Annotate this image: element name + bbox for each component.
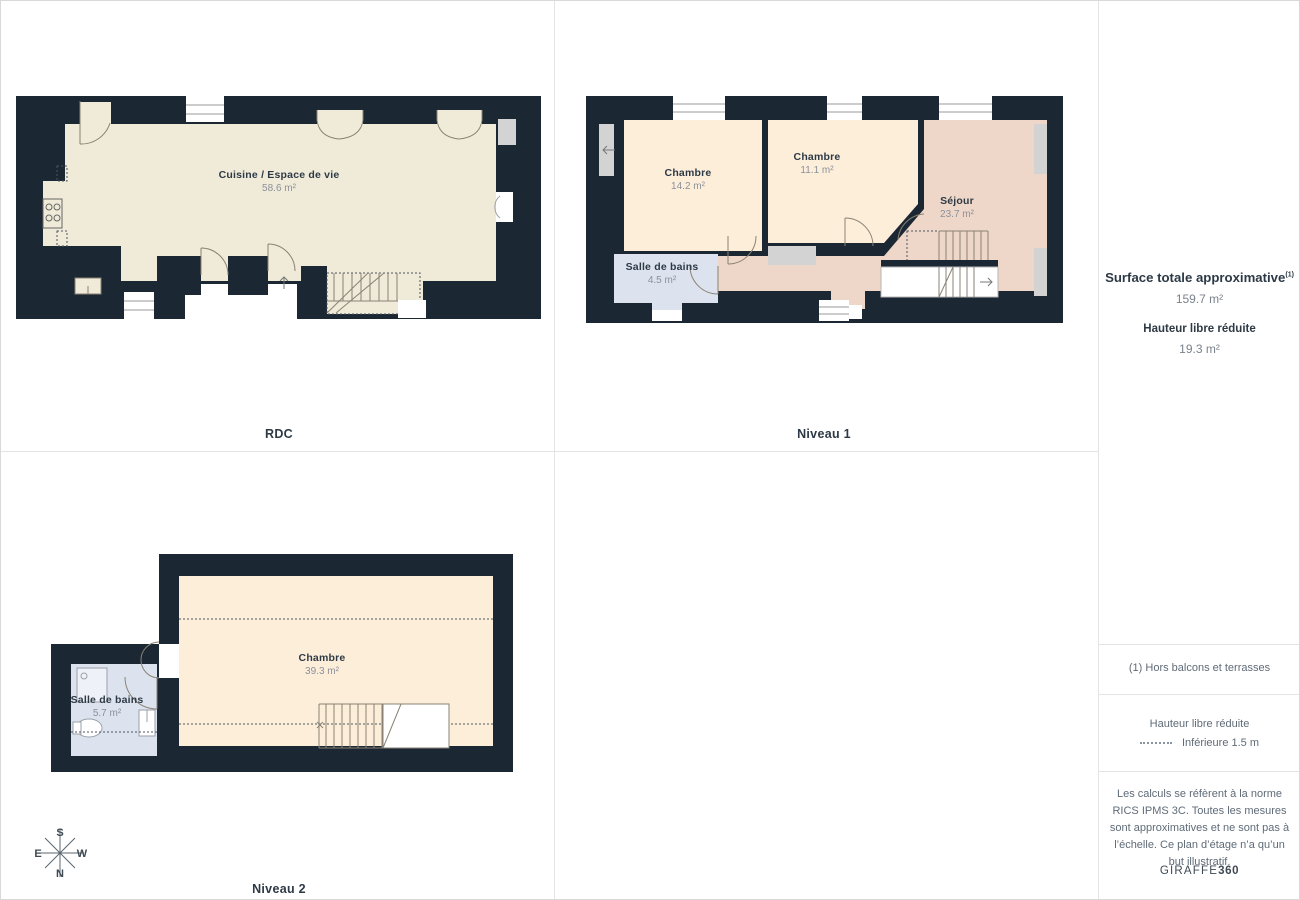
room-area: 4.5 m² (626, 275, 699, 286)
grid-divider-horizontal (1, 451, 1098, 452)
dotted-line-icon (1140, 742, 1172, 744)
room-label-salle-de-bains-n2: Salle de bains 5.7 m² (71, 694, 144, 719)
room-label-chambre-2: Chambre 11.1 m² (794, 151, 841, 176)
brand-suffix: 360 (1218, 865, 1239, 877)
footnote-text: (1) Hors balcons et terrasses (1099, 662, 1300, 674)
rdc-counter (75, 278, 101, 294)
room-name: Cuisine / Espace de vie (219, 169, 340, 181)
compass-north: N (56, 868, 64, 880)
plan-title-rdc: RDC (265, 427, 293, 441)
surface-total-label: Surface totale approximative(1) (1099, 270, 1300, 285)
floorplan-niveau1 (586, 96, 1063, 323)
reduced-height-label: Hauteur libre réduite (1099, 323, 1300, 335)
giraffe360-logo: GIRAFFE360 (1099, 865, 1300, 877)
room-name: Chambre (794, 151, 841, 163)
legend-title: Hauteur libre réduite (1099, 718, 1300, 730)
rdc-window-bottom (124, 292, 154, 319)
room-name: Séjour (940, 195, 974, 207)
sidebar-section-divider (1098, 694, 1300, 695)
sidebar-section-divider (1098, 644, 1300, 645)
disclaimer-text: Les calculs se réfèrent à la norme RICS … (1109, 786, 1290, 871)
room-area: 5.7 m² (71, 708, 144, 719)
room-label-chambre-n2: Chambre 39.3 m² (299, 652, 346, 677)
legend-row: Inférieure 1.5 m (1099, 737, 1300, 749)
compass-south: S (56, 827, 63, 839)
room-area: 14.2 m² (665, 181, 712, 192)
floorplan-page: S N E W Cuisine / Espace de vie 58.6 m² … (0, 0, 1300, 900)
room-name: Chambre (299, 652, 346, 664)
surface-total-text: Surface totale approximative (1105, 270, 1285, 285)
legend-item: Inférieure 1.5 m (1182, 737, 1259, 749)
room-chambre-2 (768, 120, 918, 243)
room-area: 58.6 m² (219, 183, 340, 194)
room-label-sejour: Séjour 23.7 m² (940, 195, 974, 220)
rdc-ledge (498, 119, 516, 145)
surface-total-value: 159.7 m² (1099, 292, 1300, 306)
rdc-window-top (186, 96, 224, 122)
room-label-cuisine: Cuisine / Espace de vie 58.6 m² (219, 169, 340, 194)
brand-name: GIRAFFE (1160, 865, 1218, 877)
surface-footnote-marker: (1) (1285, 272, 1294, 279)
room-name: Salle de bains (626, 261, 699, 273)
room-area: 39.3 m² (299, 666, 346, 677)
room-label-salle-de-bains-n1: Salle de bains 4.5 m² (626, 261, 699, 286)
floorplan-rdc (16, 96, 541, 319)
room-area: 11.1 m² (794, 165, 841, 176)
rdc-niche-right (495, 192, 513, 222)
reduced-height-value: 19.3 m² (1099, 342, 1300, 356)
room-area: 23.7 m² (940, 209, 974, 220)
sidebar-divider (1098, 1, 1099, 900)
room-label-chambre-1: Chambre 14.2 m² (665, 167, 712, 192)
plan-title-niveau1: Niveau 1 (797, 427, 851, 441)
plan-title-niveau2: Niveau 2 (252, 882, 306, 896)
room-name: Salle de bains (71, 694, 144, 706)
room-name: Chambre (665, 167, 712, 179)
sidebar-section-divider (1098, 771, 1300, 772)
compass-west: W (77, 848, 87, 860)
floorplan-niveau2 (51, 554, 513, 774)
compass-east: E (34, 848, 41, 860)
